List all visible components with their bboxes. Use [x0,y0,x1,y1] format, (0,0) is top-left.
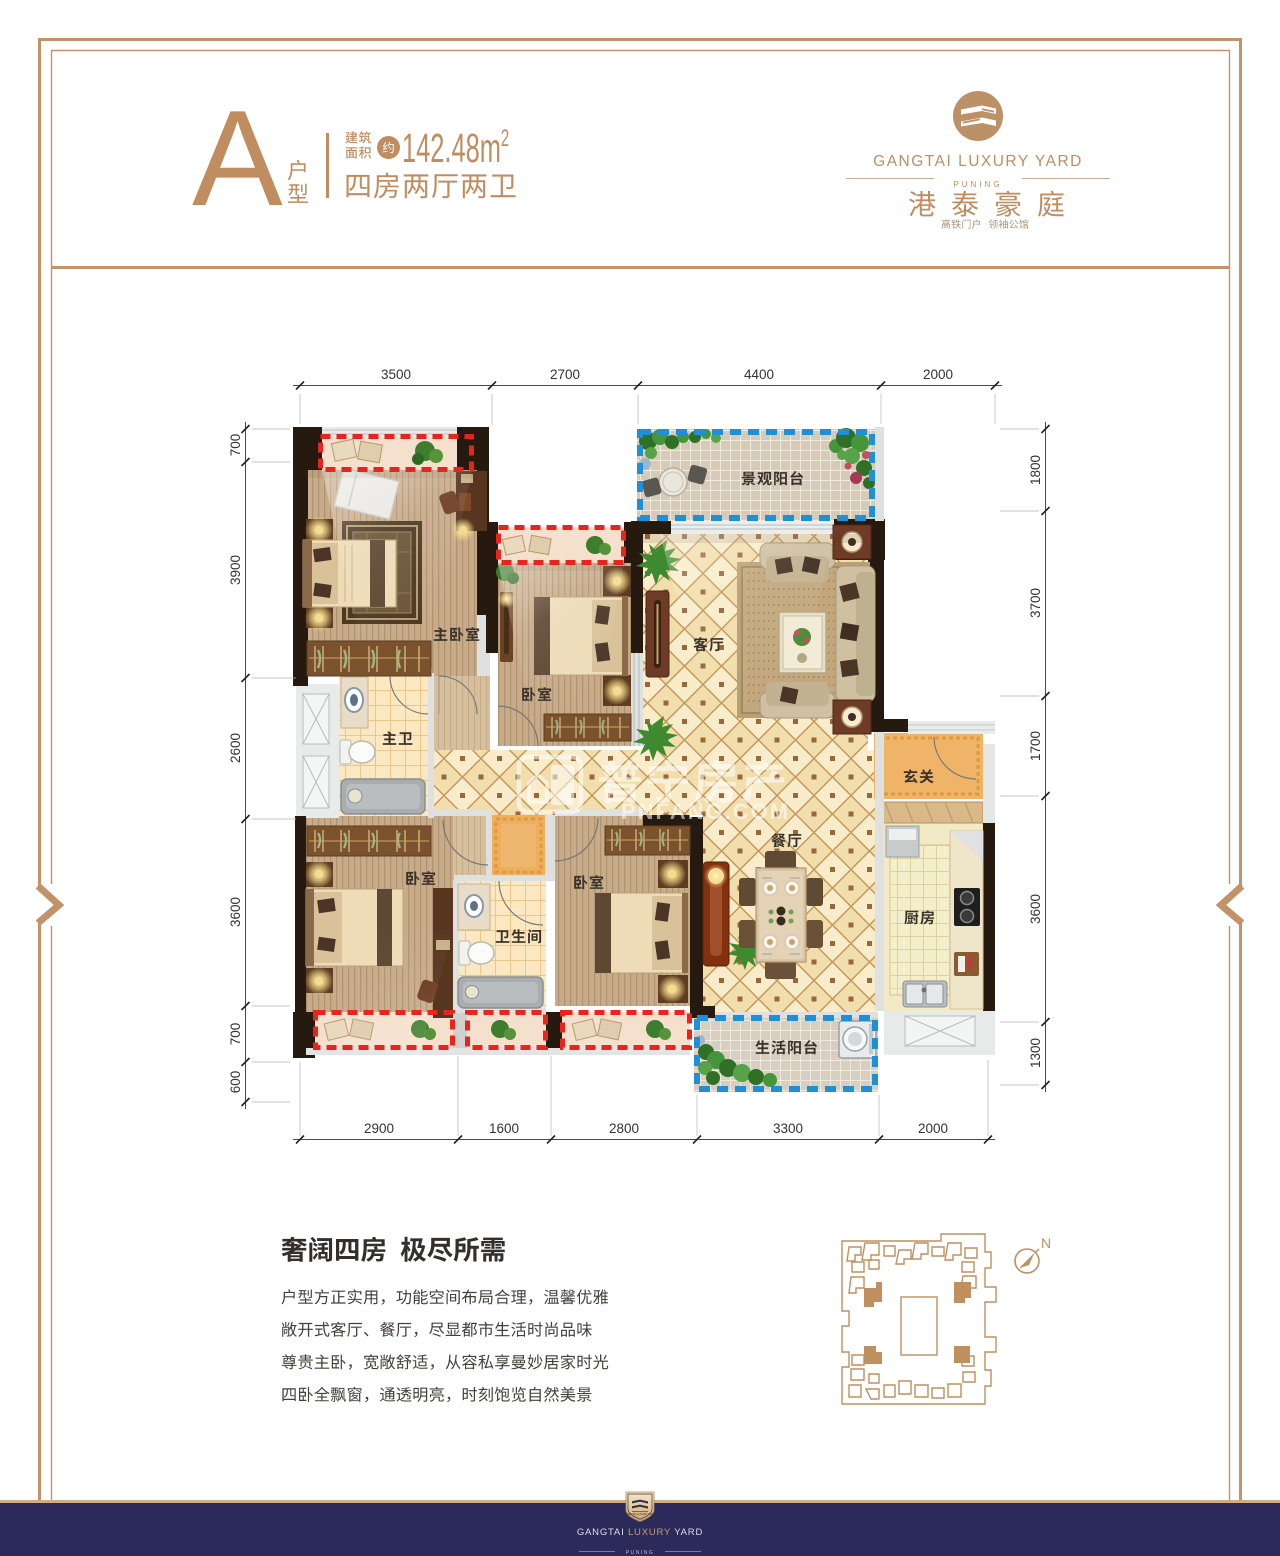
svg-text:4400: 4400 [744,367,774,382]
svg-text:2900: 2900 [364,1121,394,1136]
svg-text:3300: 3300 [773,1121,803,1136]
svg-text:2000: 2000 [923,367,953,382]
svg-text:3600: 3600 [230,897,243,927]
svg-text:N: N [1041,1235,1051,1251]
svg-text:2000: 2000 [918,1121,948,1136]
svg-text:1800: 1800 [1028,455,1043,485]
svg-text:GANGTAI LUXURY YARD: GANGTAI LUXURY YARD [625,1512,655,1516]
svg-text:2600: 2600 [230,733,243,763]
svg-text:PNFANG.COM: PNFANG.COM [621,799,790,824]
svg-text:1300: 1300 [1028,1038,1043,1068]
svg-text:2800: 2800 [609,1121,639,1136]
svg-text:700: 700 [230,434,243,457]
svg-text:3600: 3600 [1028,894,1043,924]
svg-text:2700: 2700 [550,367,580,382]
svg-text:3500: 3500 [381,367,411,382]
svg-text:3900: 3900 [230,555,243,585]
svg-text:1700: 1700 [1028,731,1043,761]
svg-text:700: 700 [230,1023,243,1046]
svg-text:1600: 1600 [489,1121,519,1136]
svg-text:600: 600 [230,1071,243,1094]
svg-text:3700: 3700 [1028,588,1043,618]
